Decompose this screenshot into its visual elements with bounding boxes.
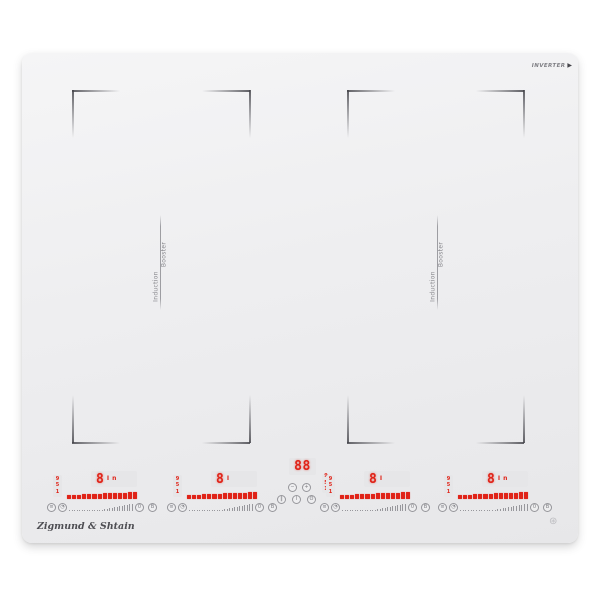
- zone-pan-button[interactable]: ◔: [331, 503, 340, 512]
- zone-level-display: 8 I: [364, 471, 410, 487]
- heat-indicator-icon: I: [498, 476, 500, 482]
- inverter-badge-text: INVERTER: [532, 63, 566, 69]
- corner-bracket: [523, 395, 525, 443]
- scale-mark: 1: [447, 490, 450, 496]
- timer-plus-button[interactable]: +: [302, 483, 311, 492]
- emblem-icon: ⊛: [549, 516, 557, 527]
- boost-button[interactable]: B: [148, 503, 157, 512]
- induction-label: Induction: [153, 266, 160, 308]
- timer-adjust-row: − +: [288, 483, 311, 492]
- corner-bracket: [476, 442, 524, 444]
- timer-display: 88: [289, 458, 316, 475]
- corner-bracket: [72, 442, 120, 444]
- zone-pan-button[interactable]: ◔: [449, 503, 458, 512]
- scale-mark: 5: [447, 483, 450, 489]
- zone-mode-button[interactable]: ≡: [320, 503, 329, 512]
- corner-bracket: [347, 442, 395, 444]
- heat-indicator-icon: I: [107, 476, 109, 482]
- level-digit: 8: [369, 473, 377, 486]
- induction-indicator-icon: n: [112, 476, 116, 482]
- zone-level-display: 8 I n: [482, 471, 528, 487]
- power-slider[interactable]: [69, 502, 133, 512]
- zone-mode-button[interactable]: ≡: [47, 503, 56, 512]
- power-level-bar: [340, 490, 414, 499]
- zone-level-display: 8 I: [211, 471, 257, 487]
- scale-strip: 9 5 1: [173, 475, 182, 497]
- inverter-badge: INVERTER ▶: [532, 63, 572, 69]
- scale-strip: 9 5 1: [326, 475, 335, 497]
- timer-digits: 88: [294, 459, 311, 474]
- heat-indicator-icon: I: [380, 476, 382, 482]
- corner-bracket: [72, 395, 74, 443]
- cooktop-panel: INVERTER ▶ Induction Booster Induction B…: [22, 53, 578, 543]
- zone-mode-button[interactable]: ≡: [167, 503, 176, 512]
- pause-button[interactable]: ‖: [277, 495, 286, 504]
- level-digit: 8: [487, 473, 495, 486]
- zone-pan-button[interactable]: ◔: [58, 503, 67, 512]
- scale-strip: 9 5 1: [53, 475, 62, 497]
- corner-bracket: [202, 442, 250, 444]
- corner-bracket: [347, 395, 349, 443]
- booster-label: Booster: [438, 234, 445, 276]
- power-level-bar: [458, 490, 532, 499]
- zone-mode-button[interactable]: ≡: [438, 503, 447, 512]
- scale-strip: 9 5 1: [444, 475, 453, 497]
- level-digit: 8: [96, 473, 104, 486]
- power-slider[interactable]: [460, 502, 528, 512]
- corner-bracket: [249, 395, 251, 443]
- heat-indicator-icon: I: [227, 476, 229, 482]
- slider-zero-button[interactable]: 0: [530, 503, 539, 512]
- scale-mark: 5: [56, 483, 59, 489]
- corner-bracket: [347, 90, 349, 138]
- slider-zero-button[interactable]: 0: [408, 503, 417, 512]
- corner-bracket: [72, 90, 120, 92]
- scale-mark: 1: [176, 490, 179, 496]
- scale-mark: 5: [329, 483, 332, 489]
- induction-label: Induction: [430, 266, 437, 308]
- power-level-bar: [187, 490, 261, 499]
- power-button[interactable]: I: [292, 495, 301, 504]
- slider-zero-button[interactable]: 0: [255, 503, 264, 512]
- lock-button[interactable]: ʘ: [307, 495, 316, 504]
- power-slider[interactable]: [189, 502, 253, 512]
- scale-mark: 5: [176, 483, 179, 489]
- boost-button[interactable]: B: [421, 503, 430, 512]
- corner-bracket: [249, 90, 251, 138]
- booster-label: Booster: [161, 234, 168, 276]
- corner-bracket: [523, 90, 525, 138]
- touch-slider-row: ≡ ◔ 0 B: [167, 502, 277, 512]
- function-row: ‖ I ʘ: [277, 495, 316, 504]
- slider-zero-button[interactable]: 0: [135, 503, 144, 512]
- corner-bracket: [476, 90, 524, 92]
- touch-slider-row: ≡ ◔ 0 B: [320, 502, 430, 512]
- zone-3-control: 9 5 1 8 I ≡ ◔ 0 B: [320, 470, 430, 512]
- touch-slider-row: ≡ ◔ 0 B: [438, 502, 552, 512]
- corner-bracket: [72, 90, 74, 138]
- boost-button[interactable]: B: [543, 503, 552, 512]
- induction-indicator-icon: n: [503, 476, 507, 482]
- zone-level-display: 8 I n: [91, 471, 137, 487]
- power-level-bar: [67, 490, 141, 499]
- scale-mark: 1: [329, 490, 332, 496]
- zone-pan-button[interactable]: ◔: [178, 503, 187, 512]
- level-digit: 8: [216, 473, 224, 486]
- brand-logo: Zigmund & Shtain: [37, 521, 135, 532]
- timer-minus-button[interactable]: −: [288, 483, 297, 492]
- inverter-arrow-icon: ▶: [567, 63, 572, 69]
- power-slider[interactable]: [342, 502, 406, 512]
- corner-bracket: [202, 90, 250, 92]
- touch-slider-row: ≡ ◔ 0 B: [47, 502, 157, 512]
- zone-4-control: 9 5 1 8 I n ≡ ◔ 0 B: [438, 470, 552, 512]
- scale-mark: 1: [56, 490, 59, 496]
- corner-bracket: [347, 90, 395, 92]
- zone-1-control: 9 5 1 8 I n ≡ ◔ 0 B: [47, 470, 157, 512]
- zone-2-control: 9 5 1 8 I ≡ ◔ 0 B: [167, 470, 277, 512]
